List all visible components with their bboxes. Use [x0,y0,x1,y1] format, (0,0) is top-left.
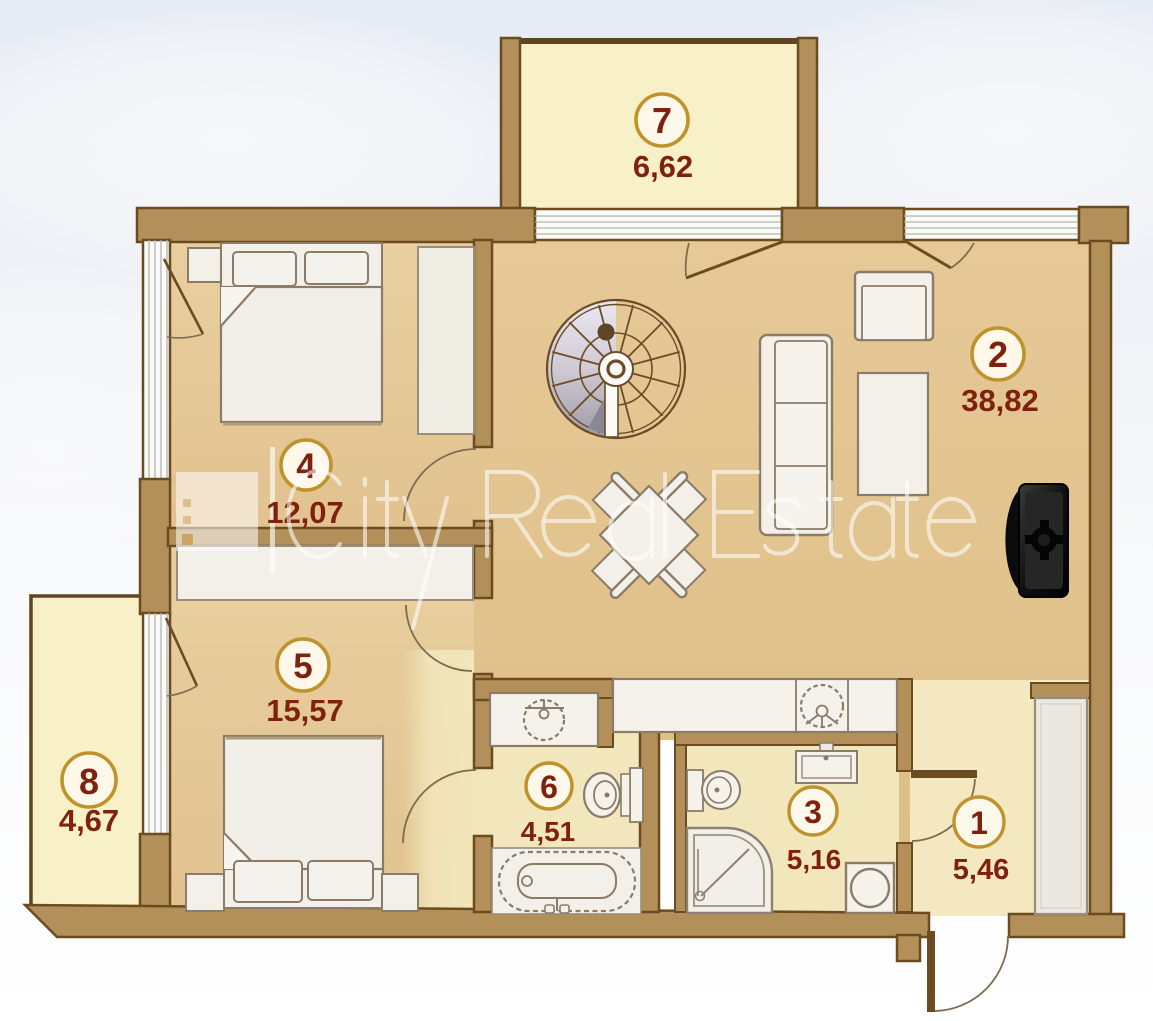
svg-text:4,51: 4,51 [521,816,576,847]
svg-text:12,07: 12,07 [266,495,344,530]
svg-text:38,82: 38,82 [961,383,1039,418]
svg-text:15,57: 15,57 [266,693,344,728]
svg-text:2: 2 [988,334,1008,375]
svg-text:5,16: 5,16 [787,844,842,875]
svg-text:6,62: 6,62 [633,149,693,184]
svg-text:3: 3 [804,794,822,830]
svg-text:5,46: 5,46 [953,854,1009,886]
svg-text:5: 5 [293,647,312,686]
svg-text:6: 6 [540,769,558,805]
svg-text:4,67: 4,67 [59,803,119,838]
svg-text:1: 1 [970,805,988,841]
svg-text:8: 8 [79,761,99,802]
svg-text:7: 7 [652,100,672,141]
